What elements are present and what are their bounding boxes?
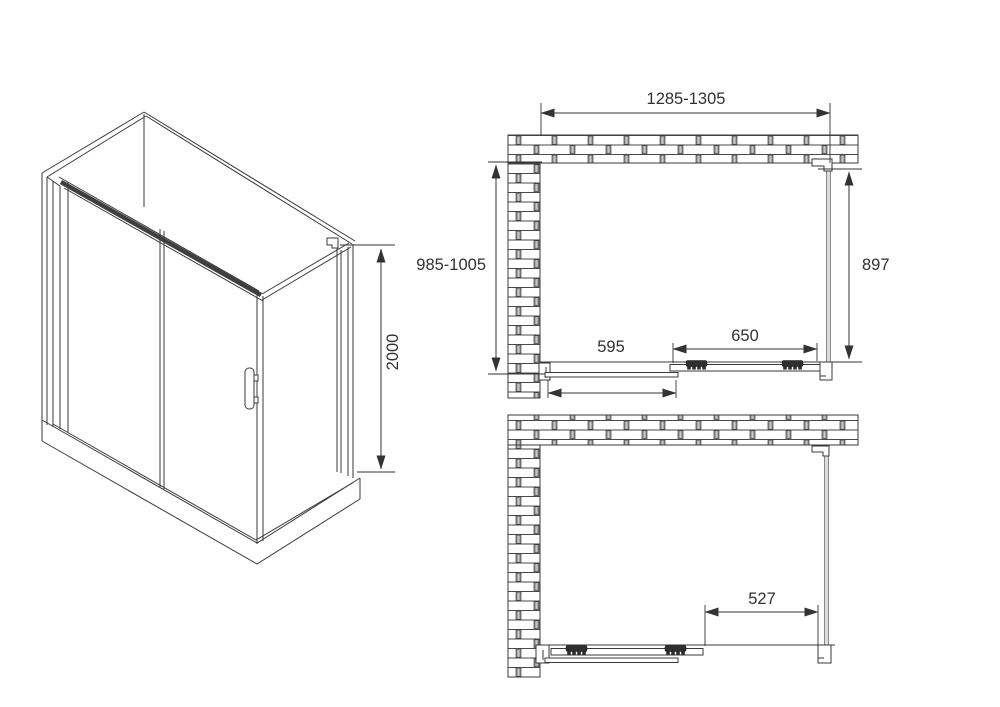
dimension-fixed-panel: 595 — [548, 338, 676, 398]
side-glass-panel — [825, 455, 829, 645]
plan-view-closed: 1285-1305 985-1005 897 650 5 — [416, 90, 889, 398]
wall-bracket — [327, 238, 338, 248]
drawing-svg: 2000 — [0, 0, 1000, 707]
dimension-height: 2000 — [340, 245, 402, 472]
dimension-opening-label: 527 — [748, 590, 776, 608]
top-edge-left-inner — [47, 116, 146, 177]
right-wall-profile — [327, 238, 353, 478]
back-wall — [508, 135, 858, 163]
return-panel-top-inner — [262, 247, 351, 300]
dimension-opening: 527 — [705, 590, 818, 648]
side-wall — [508, 163, 540, 398]
door-handle — [245, 368, 258, 409]
shower-tray — [42, 420, 360, 564]
dimension-height-label: 2000 — [384, 334, 402, 371]
top-rail — [59, 177, 263, 301]
dimension-side-panel-label: 897 — [862, 256, 890, 274]
top-edge-back-inner — [146, 116, 352, 244]
dimension-width-label: 1285-1305 — [647, 90, 726, 108]
top-edge-left-outer — [42, 112, 144, 173]
top-edge-back-outer — [144, 112, 355, 241]
dimension-door-label: 650 — [731, 327, 759, 345]
technical-drawing-page: 2000 — [0, 0, 1000, 707]
side-glass-panel — [827, 170, 831, 363]
dimension-depth-label: 985-1005 — [416, 256, 486, 274]
plan-view-open: 527 — [508, 415, 858, 677]
side-wall — [508, 445, 540, 677]
fixed-glass-panel — [545, 658, 678, 663]
fixed-glass-panel — [545, 373, 678, 378]
top-right-bracket — [812, 446, 829, 456]
right-bracket — [820, 362, 832, 380]
right-bracket — [818, 645, 831, 663]
dimension-door: 650 — [673, 327, 817, 363]
back-wall — [508, 415, 858, 445]
return-panel-top-outer — [262, 243, 349, 294]
left-wall-profile — [42, 173, 60, 429]
dimension-fixed-panel-label: 595 — [597, 338, 625, 356]
isometric-view: 2000 — [42, 112, 402, 564]
